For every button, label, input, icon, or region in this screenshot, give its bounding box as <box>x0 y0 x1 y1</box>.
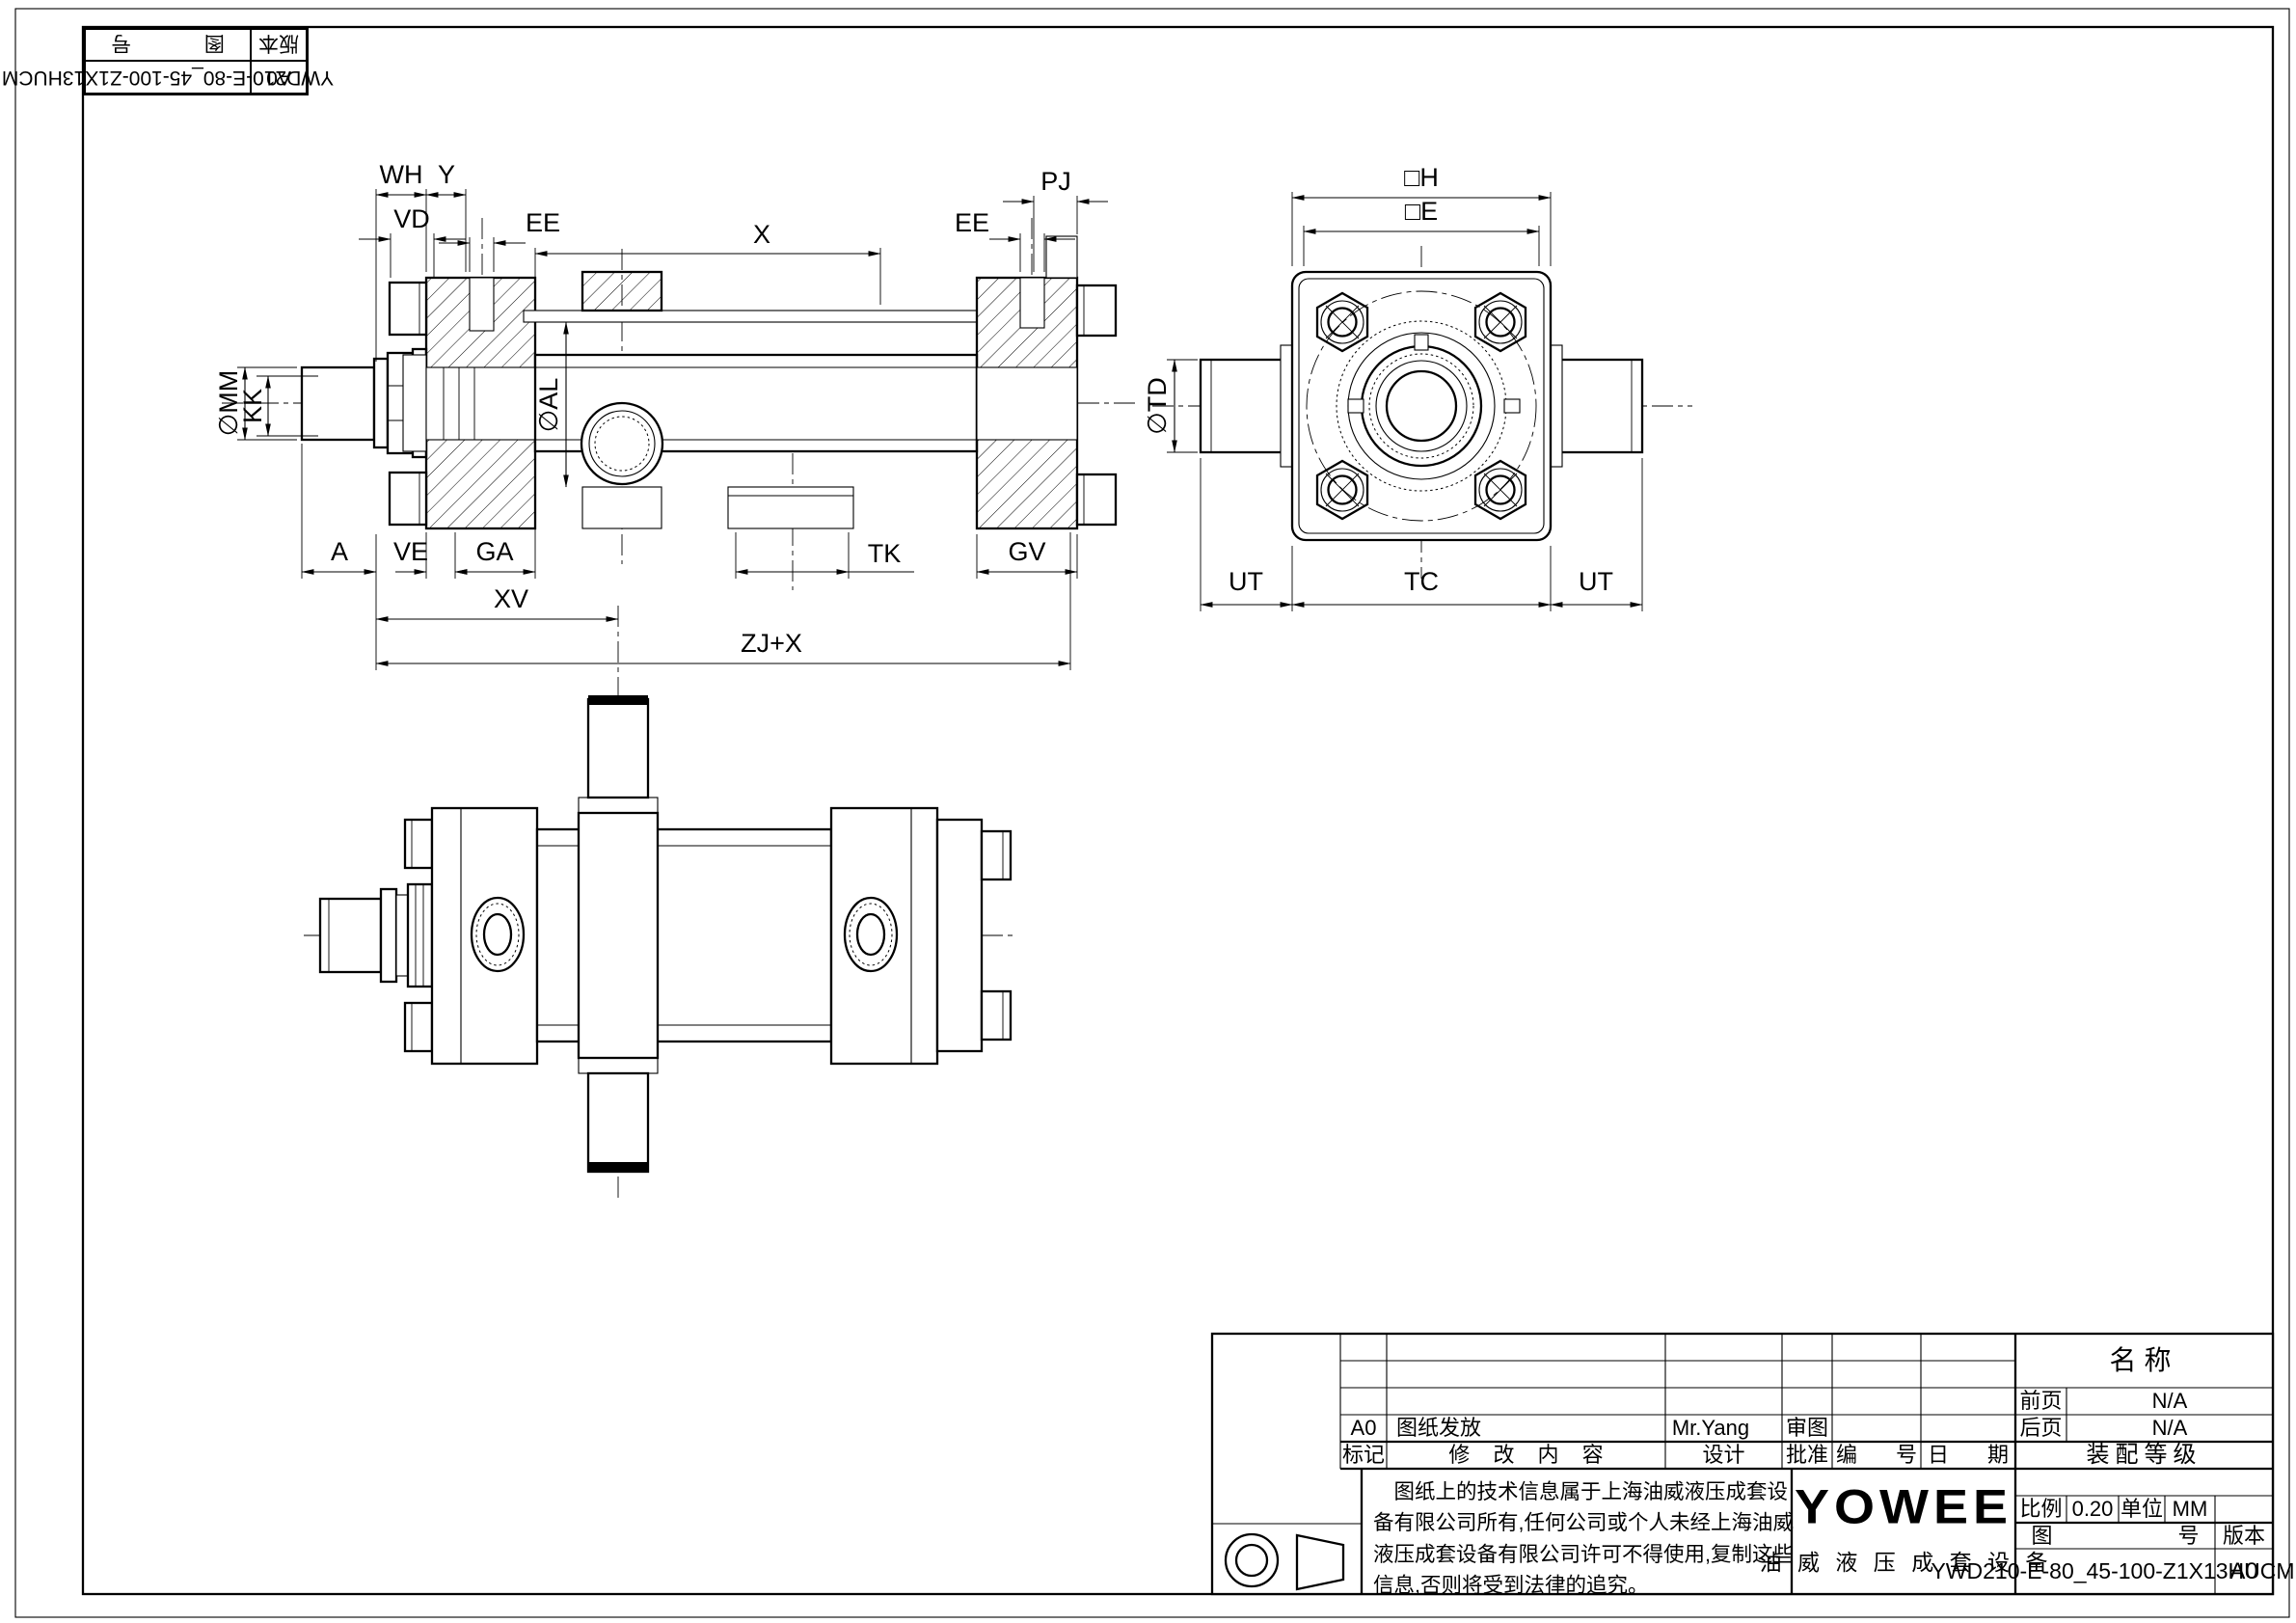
dim-ga: GA <box>475 537 513 566</box>
front-page-value: N/A <box>2066 1388 2273 1415</box>
rev-mark: A0 <box>1340 1415 1387 1442</box>
stamp-drawing-no-label: 图 号 <box>85 29 251 61</box>
back-page-value: N/A <box>2066 1415 2273 1442</box>
assembly-level-label: 装配等级 <box>2015 1442 2273 1469</box>
dim-tk: TK <box>868 539 902 568</box>
company-logo: YOWEE <box>1792 1476 2015 1538</box>
dim-wh: WH <box>380 160 423 189</box>
dim-kk: KK <box>238 389 267 423</box>
main-section-view <box>222 218 1138 590</box>
rev-review: 审图 <box>1782 1415 1832 1442</box>
dim-ve: VE <box>393 537 428 566</box>
stamp-drawing-no-value: YWD210-E-80_45-100-Z1X13HUCM <box>85 61 251 94</box>
dim-a: A <box>331 537 348 566</box>
dim-ee-rear: EE <box>955 208 989 237</box>
plan-view <box>304 606 1013 1203</box>
corner-stamp: A0 YWD210-E-80_45-100-Z1X13HUCM 版本 图 号 <box>83 27 309 95</box>
hdr-mark: 标记 <box>1340 1442 1387 1469</box>
dim-h: □H <box>1404 163 1439 192</box>
dim-ee-front: EE <box>526 208 560 237</box>
version-label: 版本 <box>2215 1523 2273 1549</box>
dim-al: ∅AL <box>534 378 563 433</box>
hdr-content: 修 改 内 容 <box>1387 1442 1665 1469</box>
dim-ut-left: UT <box>1229 567 1263 596</box>
rev-content: 图纸发放 <box>1387 1415 1675 1442</box>
hdr-design: 设计 <box>1665 1442 1782 1469</box>
rev-designer: Mr.Yang <box>1639 1415 1782 1442</box>
drawing-no-label: 图 号 <box>2015 1523 2215 1549</box>
dim-gv: GV <box>1008 537 1045 566</box>
dim-e: □E <box>1405 197 1438 226</box>
dim-xv: XV <box>494 584 528 613</box>
dim-x: X <box>753 220 770 249</box>
dim-zj-x: ZJ+X <box>741 629 802 658</box>
unit-value: MM <box>2165 1496 2215 1523</box>
hdr-date: 日 期 <box>1921 1442 2015 1469</box>
dim-vd: VD <box>393 204 430 233</box>
hdr-approve: 批准 <box>1782 1442 1832 1469</box>
legal-disclaimer: 图纸上的技术信息属于上海油威液压成套设备有限公司所有,任何公司或个人未经上海油威… <box>1362 1469 1815 1609</box>
name-label: 名称 <box>2015 1334 2273 1388</box>
scale-value: 0.20 <box>2066 1496 2119 1523</box>
dim-ut-right: UT <box>1579 567 1613 596</box>
hdr-number: 编 号 <box>1832 1442 1921 1469</box>
drawing-sheet: WH Y VD EE X EE PJ ∅MM KK <box>0 0 2296 1623</box>
dim-tc: TC <box>1404 567 1439 596</box>
front-page-label: 前页 <box>2015 1388 2066 1415</box>
dim-td: ∅TD <box>1143 377 1172 435</box>
drawing-no-value: YWD210-E-80_45-100-Z1X13HUCM <box>2011 1549 2215 1594</box>
stamp-version-label: 版本 <box>251 29 307 61</box>
end-flange-view <box>1152 246 1692 579</box>
dim-y: Y <box>438 160 455 189</box>
scale-label: 比例 <box>2015 1496 2066 1523</box>
unit-label: 单位 <box>2119 1496 2165 1523</box>
dim-pj: PJ <box>1040 167 1071 196</box>
drawing-canvas: WH Y VD EE X EE PJ ∅MM KK <box>0 0 2296 1623</box>
back-page-label: 后页 <box>2015 1415 2066 1442</box>
